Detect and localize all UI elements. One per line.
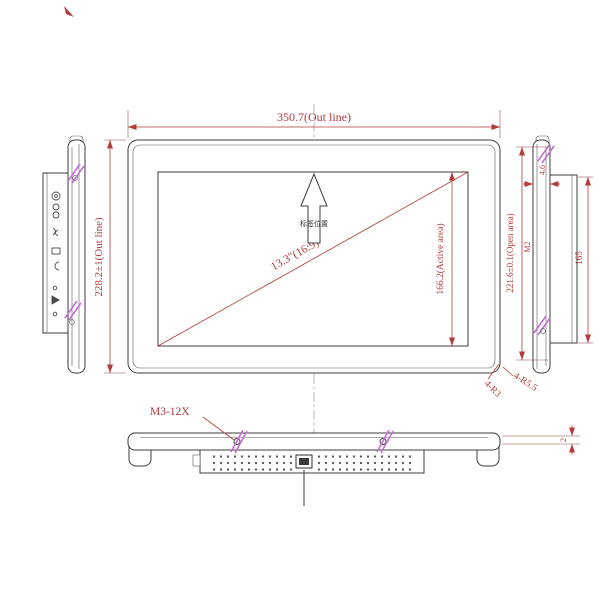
thread-label: M2 [523, 241, 532, 252]
technical-drawing-page: 13.3"(16:9) 166.2(Active area) 标签位置 350.… [0, 0, 600, 600]
front-view: 13.3"(16:9) 166.2(Active area) 标签位置 350.… [93, 110, 539, 400]
outline-width-label: 350.7(Out line) [277, 110, 351, 124]
open-area-label: 221.6±0.1(Open area) [505, 213, 515, 292]
right-rear-box [550, 175, 577, 343]
left-side-view [43, 136, 85, 373]
active-area-label: 166.2(Active area) [435, 223, 446, 294]
dim-outline-height: 228.2±1(Out line) [93, 140, 126, 373]
bottom-view: M3-12X 2 [128, 406, 580, 506]
arrow-note-text: 标签位置 [300, 219, 328, 228]
dim-step: 2 [502, 425, 580, 455]
screw-spec-label: M3-12X [150, 406, 190, 418]
corner-radius-label-2: 4-R3 [482, 379, 503, 400]
io-connector [296, 455, 312, 506]
corner-mark [64, 6, 74, 17]
step-label: 2 [558, 438, 568, 442]
front-thickness-label: 4.6 [538, 165, 547, 175]
outline-height-label: 228.2±1(Out line) [93, 217, 105, 297]
side-tab [193, 455, 200, 466]
bottom-bezel-bar [128, 433, 500, 450]
left-slab [68, 140, 85, 373]
corner-radius-label-1: 4-R5.5 [511, 371, 539, 394]
rear-height-label: 165 [574, 251, 584, 265]
right-side-view: 221.6±0.1(Open area) M2 165 4.6 [505, 136, 593, 373]
monitor-dimension-drawing: 13.3"(16:9) 166.2(Active area) 标签位置 350.… [0, 0, 600, 600]
